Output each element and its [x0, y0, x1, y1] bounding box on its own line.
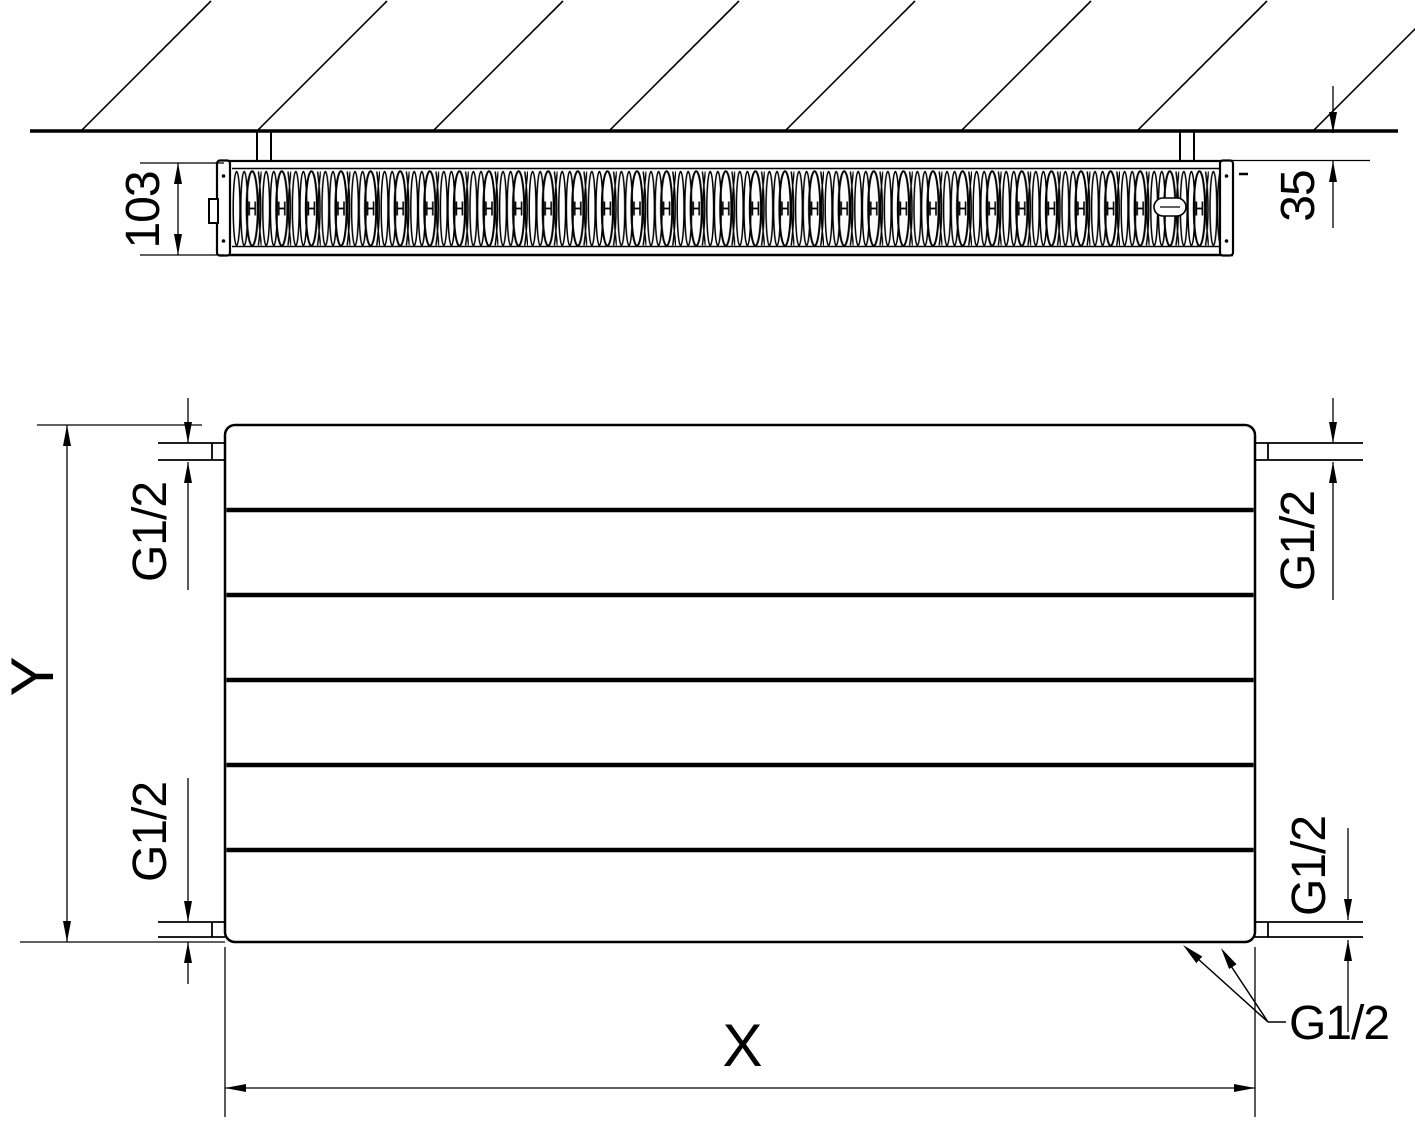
thread-label-top-right: G1/2 — [1275, 491, 1323, 591]
width-label: X — [722, 1016, 761, 1076]
thread-label-bottom-leader: G1/2 — [1289, 1000, 1389, 1048]
drawing-canvas — [0, 0, 1415, 1123]
dimension-g12-top-right — [1329, 398, 1337, 600]
connection-stub-bottom-left — [158, 922, 225, 937]
dimension-g12-top-left — [184, 398, 192, 590]
convector-fins — [232, 170, 1220, 247]
connection-stub-top-left — [158, 443, 225, 460]
dimension-g12-bottom-left — [184, 778, 192, 984]
thread-label-top-left: G1/2 — [127, 482, 175, 582]
wall-distance-label: 35 — [1275, 170, 1323, 221]
wall-hatching — [81, 1, 1415, 131]
mounting-bracket-right — [1180, 131, 1194, 162]
depth-dimension-label: 103 — [120, 171, 168, 248]
radiator-technical-drawing: 103 35 Y X G1/2 G1/2 G1/2 G1/2 G1/2 — [0, 0, 1415, 1123]
connection-stub-bottom-right — [1255, 922, 1363, 937]
connection-stub-top-right — [1255, 443, 1363, 460]
height-label: Y — [3, 657, 63, 696]
mounting-bracket-left — [257, 131, 271, 162]
thread-label-bottom-right: G1/2 — [1286, 816, 1334, 916]
radiator-top-view — [209, 161, 1248, 256]
side-tab-left — [209, 199, 218, 223]
radiator-front-view — [158, 425, 1363, 942]
leader-g12-bottom-connections — [1183, 945, 1286, 1022]
thread-label-bottom-left: G1/2 — [127, 782, 175, 882]
